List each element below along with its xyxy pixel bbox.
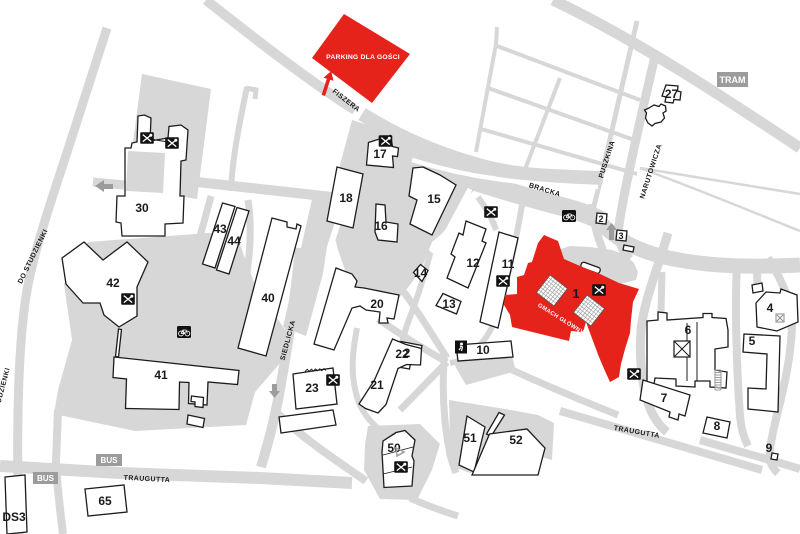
svg-text:20: 20 bbox=[370, 297, 384, 311]
svg-text:40: 40 bbox=[261, 291, 275, 305]
svg-text:42: 42 bbox=[106, 276, 120, 290]
svg-text:2: 2 bbox=[598, 214, 603, 224]
svg-text:22: 22 bbox=[395, 347, 409, 361]
svg-text:1: 1 bbox=[572, 286, 579, 301]
svg-text:13: 13 bbox=[442, 297, 456, 311]
svg-text:27: 27 bbox=[665, 87, 679, 101]
svg-text:16: 16 bbox=[374, 219, 388, 233]
svg-text:7: 7 bbox=[661, 391, 668, 405]
svg-text:11: 11 bbox=[502, 257, 515, 271]
svg-text:15: 15 bbox=[427, 192, 441, 206]
svg-text:4: 4 bbox=[767, 301, 774, 315]
svg-text:PARKING DLA GOŚCI: PARKING DLA GOŚCI bbox=[326, 52, 400, 61]
svg-text:18: 18 bbox=[339, 191, 353, 205]
svg-text:TRAM: TRAM bbox=[720, 75, 746, 85]
svg-text:5: 5 bbox=[749, 334, 756, 348]
svg-text:23: 23 bbox=[305, 381, 319, 395]
svg-text:12: 12 bbox=[466, 256, 480, 270]
svg-text:50: 50 bbox=[387, 441, 401, 455]
svg-text:BUS: BUS bbox=[101, 456, 119, 465]
svg-text:10: 10 bbox=[476, 343, 490, 357]
svg-text:3: 3 bbox=[618, 231, 623, 241]
svg-text:17: 17 bbox=[373, 147, 387, 161]
svg-text:44: 44 bbox=[227, 234, 241, 248]
svg-text:65: 65 bbox=[98, 494, 112, 508]
svg-text:43: 43 bbox=[213, 222, 227, 236]
svg-text:8: 8 bbox=[714, 419, 721, 433]
svg-text:30: 30 bbox=[135, 201, 149, 215]
svg-text:6: 6 bbox=[685, 323, 692, 337]
svg-text:9: 9 bbox=[766, 441, 773, 455]
svg-text:21: 21 bbox=[370, 378, 384, 392]
svg-text:BUS: BUS bbox=[37, 474, 55, 483]
svg-text:14: 14 bbox=[414, 266, 428, 280]
svg-text:51: 51 bbox=[463, 431, 477, 445]
svg-text:52: 52 bbox=[509, 433, 523, 447]
svg-text:41: 41 bbox=[154, 368, 168, 382]
svg-text:DS3: DS3 bbox=[2, 510, 26, 524]
